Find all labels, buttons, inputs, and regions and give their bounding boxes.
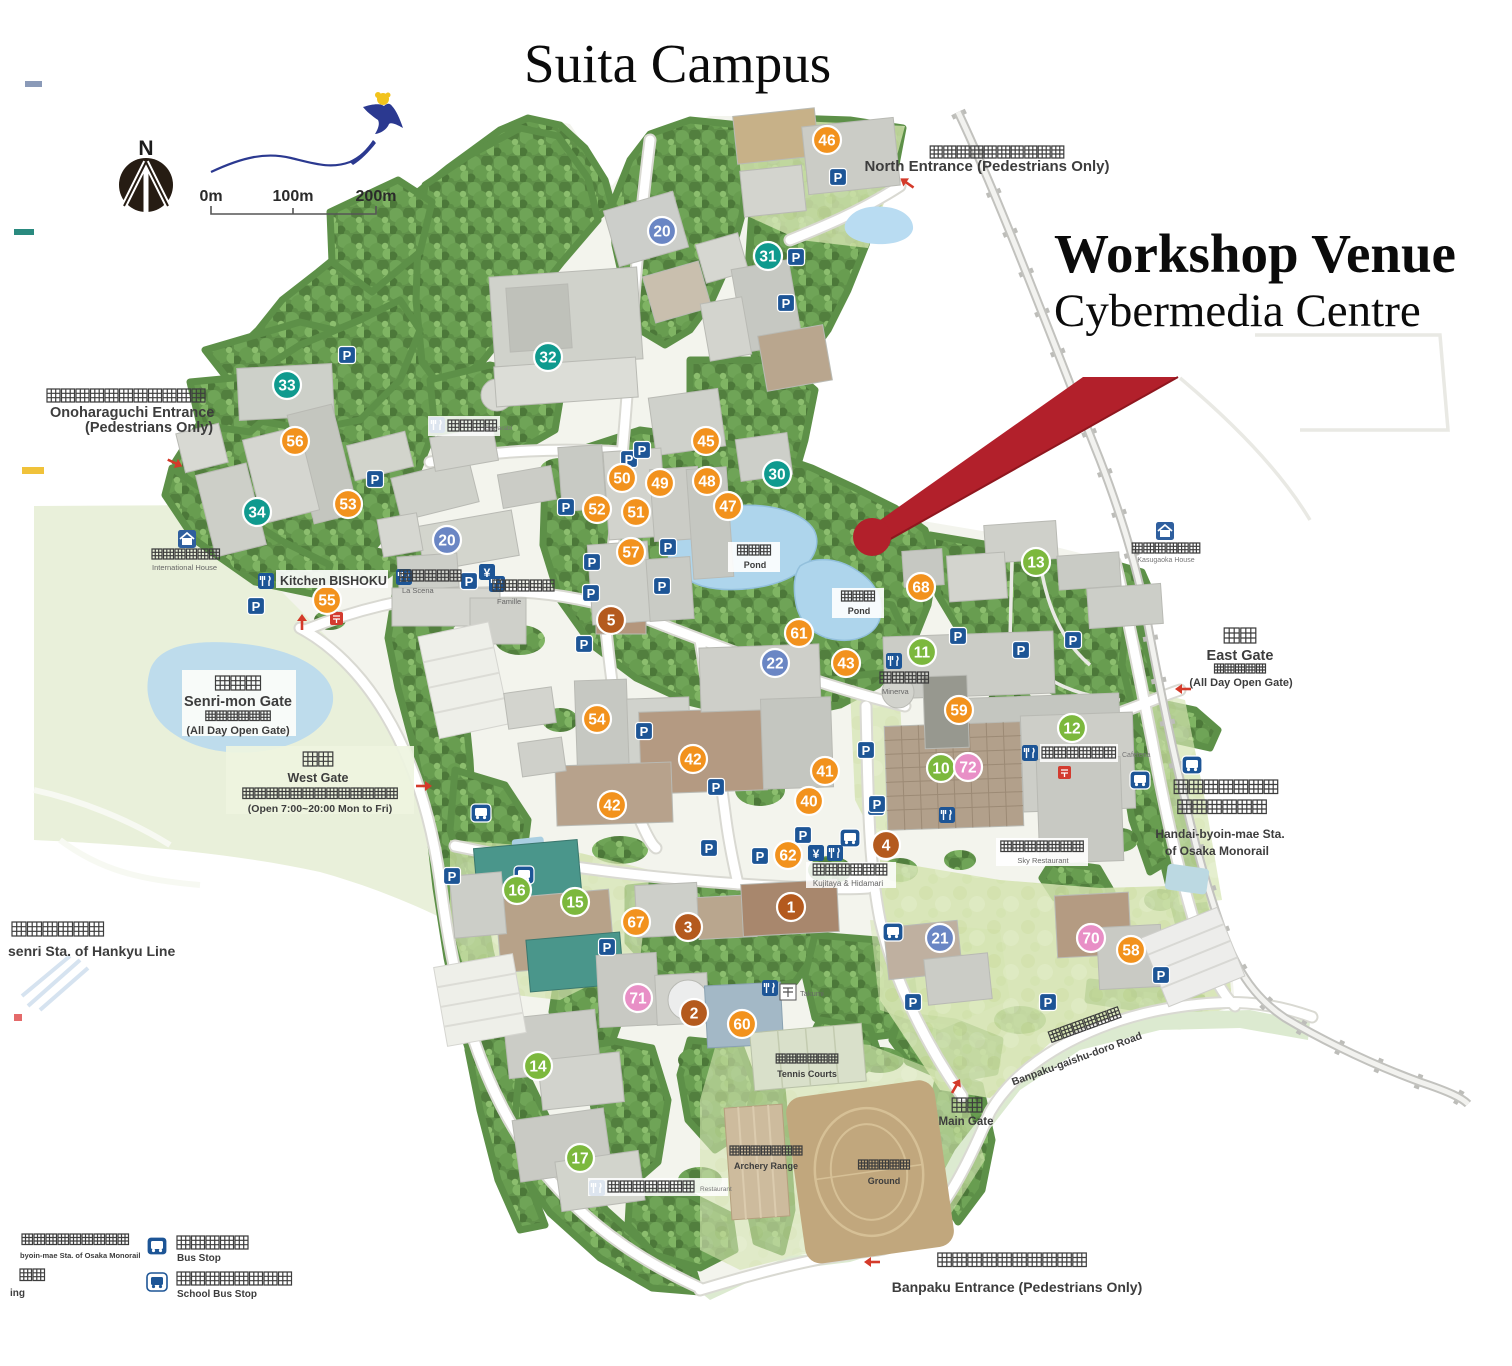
svg-text:Bus Stop: Bus Stop	[177, 1253, 221, 1264]
svg-text:32: 32	[539, 350, 556, 367]
svg-text:42: 42	[684, 752, 701, 769]
svg-text:¥: ¥	[813, 847, 820, 861]
svg-text:15: 15	[566, 895, 584, 912]
svg-text:57: 57	[622, 545, 639, 562]
svg-text:P: P	[252, 599, 261, 614]
svg-text:P: P	[1157, 968, 1166, 983]
svg-text:P: P	[587, 586, 596, 601]
svg-text:58: 58	[1122, 943, 1140, 960]
svg-text:Restaurant: Restaurant	[700, 1186, 732, 1193]
svg-text:Kitchen BISHOKU: Kitchen BISHOKU	[280, 574, 387, 588]
svg-text:(Pedestrians Only): (Pedestrians Only)	[85, 420, 213, 436]
svg-text:200m: 200m	[356, 188, 397, 205]
svg-text:20: 20	[438, 533, 455, 550]
svg-text:54: 54	[588, 712, 606, 729]
svg-text:P: P	[862, 743, 871, 758]
svg-text:20: 20	[653, 224, 670, 241]
svg-text:Minerva: Minerva	[882, 687, 910, 696]
svg-text:East Gate: East Gate	[1207, 648, 1274, 664]
svg-text:P: P	[343, 348, 352, 363]
svg-text:P: P	[638, 443, 647, 458]
svg-text:P: P	[756, 849, 765, 864]
svg-text:P: P	[873, 797, 882, 812]
svg-text:52: 52	[588, 502, 605, 519]
svg-text:56: 56	[286, 434, 304, 451]
svg-text:70: 70	[1082, 931, 1099, 948]
svg-text:Handai-byoin-mae Sta.: Handai-byoin-mae Sta.	[1155, 827, 1284, 841]
svg-text:Workshop Venue: Workshop Venue	[1054, 223, 1456, 284]
svg-text:11: 11	[914, 645, 931, 662]
svg-text:1: 1	[787, 900, 796, 917]
svg-text:13: 13	[1027, 555, 1045, 572]
svg-text:P: P	[640, 724, 649, 739]
svg-text:4: 4	[882, 838, 891, 855]
svg-text:62: 62	[779, 848, 796, 865]
svg-text:P: P	[712, 780, 721, 795]
svg-text:Cafeteria: Cafeteria	[1122, 752, 1151, 759]
svg-text:P: P	[909, 995, 918, 1010]
svg-text:P: P	[1069, 633, 1078, 648]
svg-text:45: 45	[697, 434, 715, 451]
svg-text:55: 55	[318, 593, 336, 610]
svg-text:49: 49	[651, 476, 669, 493]
svg-text:La Scena: La Scena	[402, 586, 435, 595]
svg-text:41: 41	[816, 764, 834, 781]
svg-text:61: 61	[790, 626, 808, 643]
svg-text:68: 68	[912, 580, 930, 597]
svg-text:42: 42	[603, 798, 620, 815]
svg-text:0m: 0m	[199, 188, 222, 205]
svg-text:2: 2	[690, 1006, 699, 1023]
svg-text:59: 59	[950, 703, 968, 720]
svg-text:46: 46	[818, 133, 836, 150]
svg-text:40: 40	[800, 794, 817, 811]
svg-text:47: 47	[719, 499, 736, 516]
svg-text:(All Day Open Gate): (All Day Open Gate)	[1189, 677, 1293, 689]
svg-text:Pond: Pond	[744, 560, 767, 570]
svg-text:Cybermedia Centre: Cybermedia Centre	[1054, 285, 1421, 337]
svg-text:P: P	[588, 555, 597, 570]
svg-text:30: 30	[768, 467, 785, 484]
svg-text:48: 48	[698, 474, 716, 491]
svg-text:Pond: Pond	[848, 606, 871, 616]
svg-text:Archery Range: Archery Range	[734, 1161, 798, 1171]
svg-text:16: 16	[508, 883, 526, 900]
svg-text:Onoharaguchi Entrance: Onoharaguchi Entrance	[50, 405, 214, 421]
svg-text:International House: International House	[152, 563, 217, 572]
svg-text:10: 10	[932, 761, 949, 778]
svg-text:(Open 7:00~20:00 Mon to Fri): (Open 7:00~20:00 Mon to Fri)	[248, 803, 392, 815]
svg-text:72: 72	[959, 760, 976, 777]
svg-text:ing: ing	[10, 1288, 25, 1299]
svg-text:22: 22	[766, 656, 783, 673]
svg-text:60: 60	[733, 1017, 750, 1034]
svg-text:P: P	[603, 940, 612, 955]
svg-text:P: P	[1044, 995, 1053, 1010]
svg-text:Ground: Ground	[868, 1176, 901, 1186]
svg-text:12: 12	[1063, 721, 1080, 738]
svg-text:21: 21	[931, 931, 949, 948]
svg-text:50: 50	[613, 471, 630, 488]
svg-text:33: 33	[278, 378, 296, 395]
svg-text:P: P	[792, 250, 801, 265]
svg-text:P: P	[562, 500, 571, 515]
svg-text:of Osaka Monorail: of Osaka Monorail	[1165, 844, 1269, 858]
svg-text:100m: 100m	[273, 188, 314, 205]
svg-text:51: 51	[627, 505, 645, 522]
svg-text:P: P	[705, 841, 714, 856]
svg-text:Kujitaya & Hidamari: Kujitaya & Hidamari	[813, 879, 883, 888]
svg-text:Sky Restaurant: Sky Restaurant	[1017, 856, 1069, 865]
svg-text:P: P	[448, 869, 457, 884]
svg-text:P: P	[658, 579, 667, 594]
svg-text:5: 5	[607, 613, 616, 630]
svg-text:Senri-mon Gate: Senri-mon Gate	[184, 694, 292, 710]
svg-text:P: P	[465, 574, 474, 589]
svg-text:71: 71	[629, 991, 647, 1008]
svg-text:17: 17	[571, 1151, 588, 1168]
svg-text:31: 31	[759, 249, 777, 266]
svg-text:P: P	[799, 828, 808, 843]
svg-text:Famille: Famille	[497, 597, 521, 606]
svg-text:P: P	[371, 472, 380, 487]
svg-text:14: 14	[529, 1059, 547, 1076]
svg-text:67: 67	[627, 915, 644, 932]
svg-text:Kasugaoka House: Kasugaoka House	[1137, 557, 1194, 564]
svg-text:P: P	[1017, 643, 1026, 658]
svg-text:Tennis Courts: Tennis Courts	[777, 1069, 837, 1079]
svg-text:senri Sta. of Hankyu Line: senri Sta. of Hankyu Line	[8, 943, 175, 959]
svg-text:34: 34	[248, 505, 266, 522]
svg-text:N: N	[138, 137, 153, 160]
svg-text:School Bus Stop: School Bus Stop	[177, 1289, 257, 1300]
svg-text:Main Gate: Main Gate	[939, 1116, 994, 1128]
svg-text:Suita Campus: Suita Campus	[524, 33, 831, 94]
svg-text:P: P	[834, 170, 843, 185]
svg-text:53: 53	[339, 497, 357, 514]
svg-text:3: 3	[684, 920, 693, 937]
svg-text:P: P	[782, 296, 791, 311]
svg-text:43: 43	[837, 656, 855, 673]
svg-text:P: P	[664, 540, 673, 555]
svg-text:North Entrance (Pedestrians On: North Entrance (Pedestrians Only)	[864, 158, 1109, 175]
svg-text:West Gate: West Gate	[288, 771, 349, 785]
svg-text:Takumi: Takumi	[800, 989, 824, 998]
svg-text:Banpaku Entrance (Pedestrians: Banpaku Entrance (Pedestrians Only)	[892, 1279, 1143, 1295]
svg-text:P: P	[954, 629, 963, 644]
svg-text:Sawarabi: Sawarabi	[485, 425, 512, 432]
svg-text:(All Day Open Gate): (All Day Open Gate)	[186, 725, 290, 737]
svg-text:byoin-mae Sta. of Osaka Monora: byoin-mae Sta. of Osaka Monorail	[20, 1251, 140, 1260]
svg-text:P: P	[580, 637, 589, 652]
